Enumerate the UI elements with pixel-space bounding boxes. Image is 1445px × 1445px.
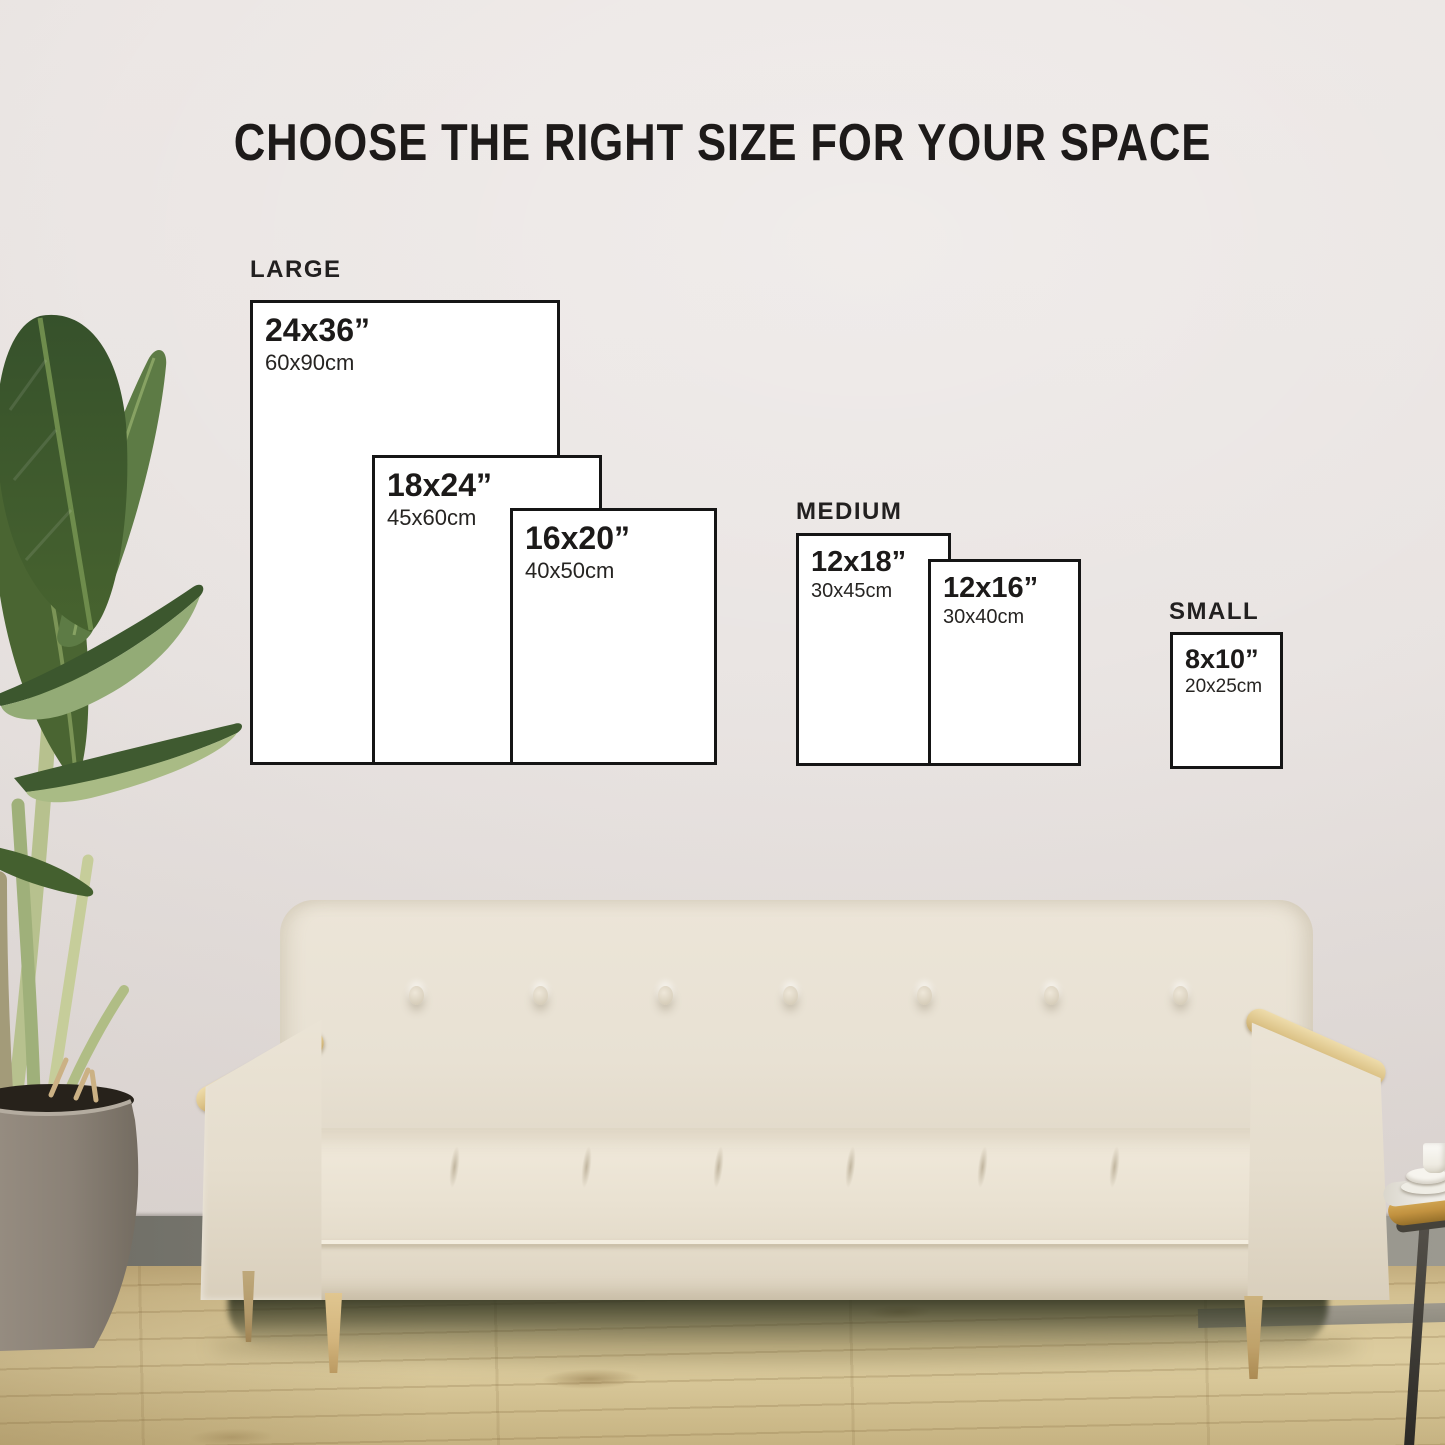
- side-table: [0, 0, 1445, 1445]
- coffee-cup: [1423, 1143, 1445, 1173]
- scene: CHOOSE THE RIGHT SIZE FOR YOUR SPACE LAR…: [0, 0, 1445, 1445]
- table-leg: [1404, 1218, 1430, 1445]
